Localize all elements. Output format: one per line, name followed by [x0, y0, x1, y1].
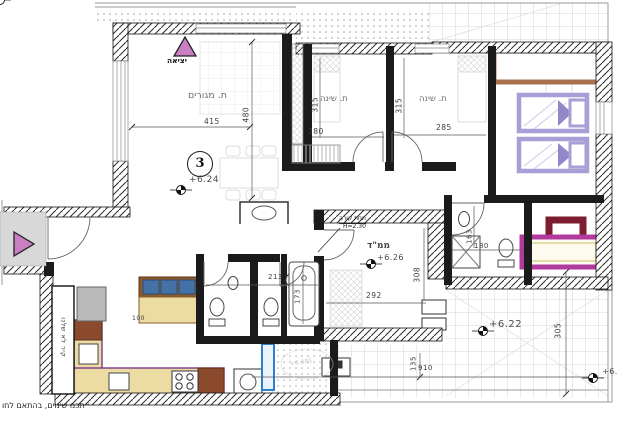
- level-terrace: +6.22: [489, 320, 522, 330]
- dim-bath2-depth: 163: [467, 225, 474, 249]
- dining-set-faint: [220, 146, 278, 200]
- bedroom2-label: ת. שינה: [419, 95, 447, 104]
- living-room-label: ת. מגורים: [188, 91, 227, 101]
- toilet-3: [498, 239, 514, 267]
- shaft: [292, 44, 303, 144]
- stove: [172, 371, 198, 392]
- dim-terrace-depth: 305: [554, 319, 562, 343]
- dim-bedroom2-width: 285: [436, 124, 452, 132]
- dim-bedroom1-width: 280: [308, 128, 324, 136]
- bath1-door-arc: [204, 262, 228, 286]
- living-sofa-faint: [200, 42, 280, 114]
- bottom-note: ״תכנו שינוים, בהתאם לחו: [2, 402, 90, 410]
- kitchen-sink-1: [79, 344, 98, 364]
- mamad-door-arc: [324, 230, 354, 260]
- sofa: [139, 277, 201, 323]
- beam-height-note: H=2.30: [343, 224, 366, 230]
- mamad-bed-faint: [330, 270, 362, 326]
- bedroom2-door-arc: [392, 132, 422, 162]
- washing-machine: [234, 369, 262, 395]
- level-edge: +6.: [602, 368, 618, 376]
- floor-plan: יציאה ת. מגורים 415 480 3 +6.24 ת. שינה …: [0, 0, 636, 424]
- dim-terrace-width: 910: [418, 365, 433, 372]
- level-mamad: +6.26: [377, 254, 404, 262]
- sink-1: [228, 277, 238, 290]
- floor-plan-drawing: [0, 0, 636, 424]
- water-pipe-blue: [262, 344, 274, 390]
- daybed-lavender-2: [519, 139, 587, 171]
- level-living: +6.24: [189, 176, 219, 185]
- bed2-faint: [458, 56, 486, 122]
- toilet-1: [209, 298, 225, 326]
- wardrobe-brown: [494, 51, 600, 82]
- exit-label: יציאה: [167, 57, 187, 65]
- dim-mamad-width: 292: [366, 292, 382, 300]
- dim-bedroom1-depth: 315: [311, 93, 319, 117]
- bedroom1-door-arc: [353, 132, 383, 162]
- dim-sofa: 100: [132, 316, 145, 322]
- dim-bath-width: 213: [268, 274, 283, 281]
- bench-magenta: [522, 220, 602, 267]
- toilet-2: [263, 298, 279, 326]
- wall-note: קיר לא שלנו: [60, 311, 67, 363]
- dim-living-width: 415: [204, 118, 220, 126]
- dim-tub-length: 173: [295, 285, 302, 309]
- daybed-lavender-1: [519, 95, 587, 131]
- kitchen-sink-2: [109, 373, 129, 390]
- fridge: [77, 287, 106, 321]
- mamad-label: ממ"ד: [367, 242, 390, 251]
- exit-triangle-icon: [174, 37, 196, 56]
- unit-number-badge: 3: [187, 151, 213, 177]
- bedroom1-label: ת. שינה: [320, 95, 348, 104]
- dim-bath2-width: 180: [474, 243, 489, 250]
- beam-arrow: [318, 228, 340, 252]
- cabinet-striped: [292, 145, 340, 163]
- entry-door-arc: [48, 217, 90, 259]
- dim-terrace-side: 135: [411, 352, 418, 376]
- dim-living-height: 480: [242, 103, 250, 127]
- dim-bedroom2-depth: 315: [395, 94, 403, 118]
- niche-basin: [240, 202, 288, 224]
- dim-mamad-depth: 308: [413, 263, 421, 287]
